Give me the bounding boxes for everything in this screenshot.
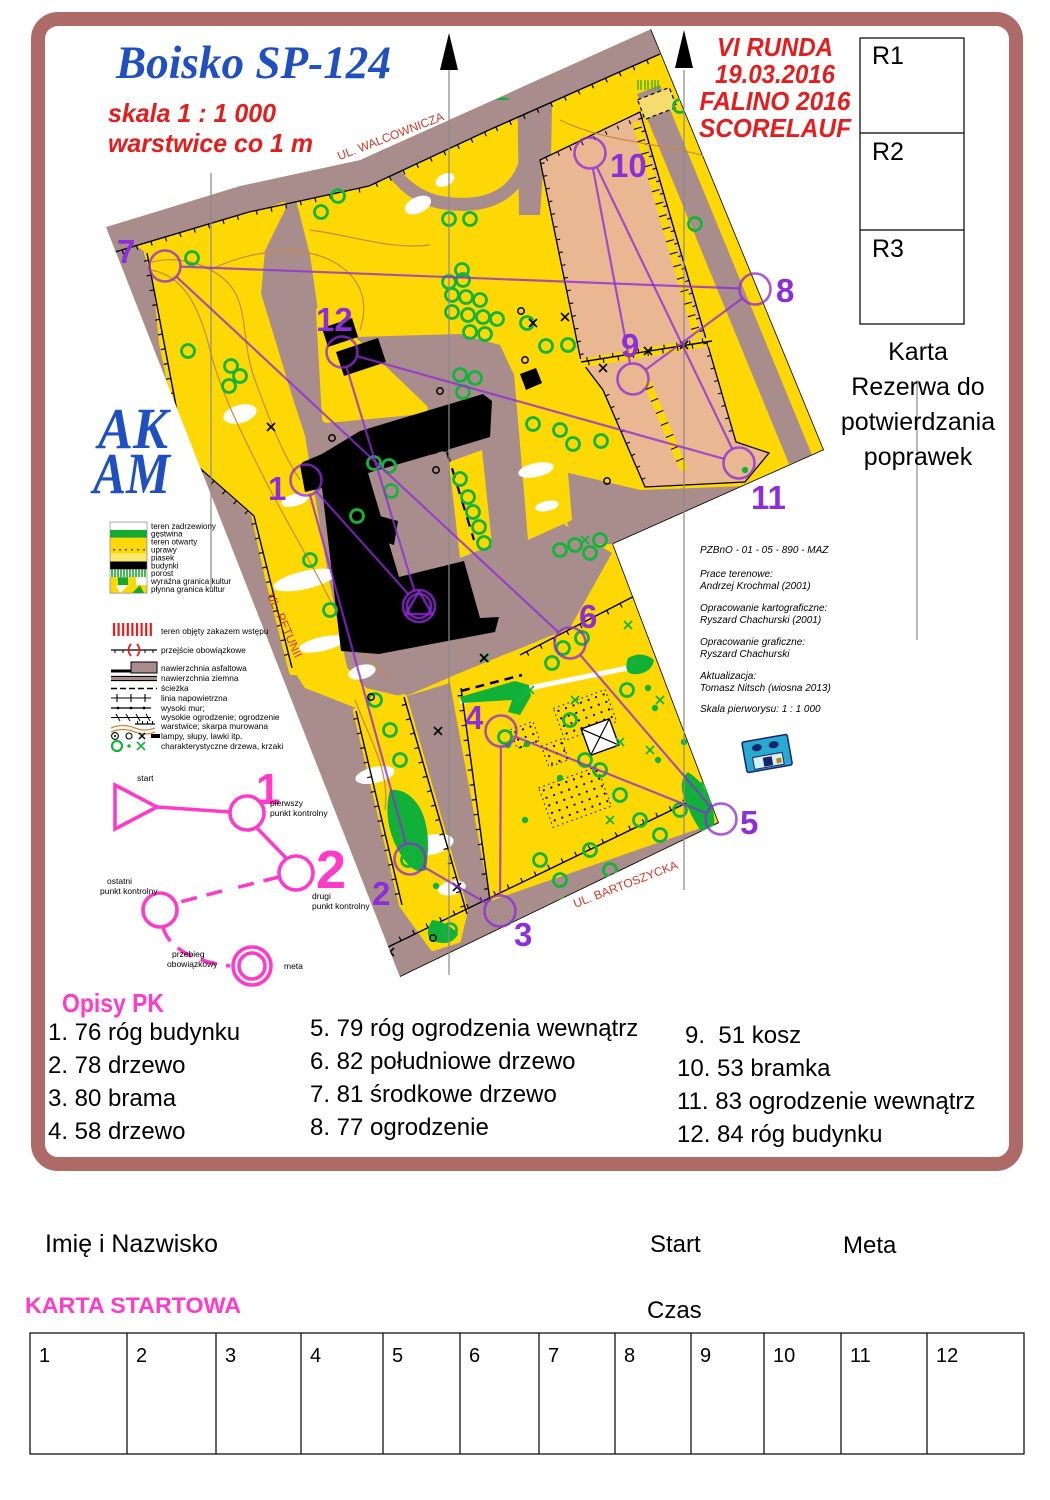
svg-text:1: 1 xyxy=(268,470,286,507)
svg-text:warstwice co 1 m: warstwice co 1 m xyxy=(108,128,313,158)
svg-text:start: start xyxy=(137,773,154,783)
svg-text:Karta: Karta xyxy=(888,338,948,366)
svg-text:punkt kontrolny: punkt kontrolny xyxy=(270,808,328,818)
svg-text:7: 7 xyxy=(548,1345,559,1367)
svg-text:1: 1 xyxy=(39,1345,50,1367)
svg-text:3. 80 brama: 3. 80 brama xyxy=(48,1085,177,1112)
svg-text:drugi: drugi xyxy=(312,891,331,901)
svg-text:nawierzchnia asfaltowa: nawierzchnia asfaltowa xyxy=(161,663,247,673)
svg-text:punkt kontrolny: punkt kontrolny xyxy=(312,901,370,911)
svg-text:12: 12 xyxy=(316,301,353,338)
svg-text:warstwice; skarpa murowana: warstwice; skarpa murowana xyxy=(160,721,268,731)
svg-text:R2: R2 xyxy=(872,138,904,166)
svg-text:przebieg: przebieg xyxy=(172,949,205,959)
svg-text:12. 84 róg budynku: 12. 84 róg budynku xyxy=(677,1121,883,1148)
svg-text:KARTA STARTOWA: KARTA STARTOWA xyxy=(25,1293,241,1318)
svg-text:7: 7 xyxy=(117,233,135,270)
svg-text:Andrzej Krochmal (2001): Andrzej Krochmal (2001) xyxy=(699,581,811,592)
svg-text:6. 82 południowe drzewo: 6. 82 południowe drzewo xyxy=(310,1048,576,1075)
svg-text:9: 9 xyxy=(621,327,639,364)
svg-text:2. 78 drzewo: 2. 78 drzewo xyxy=(48,1052,185,1079)
svg-text:punkt kontrolny: punkt kontrolny xyxy=(100,886,158,896)
svg-text:Opracowanie kartograficzne:: Opracowanie kartograficzne: xyxy=(700,603,828,614)
svg-text:12: 12 xyxy=(936,1345,958,1367)
svg-text:VI RUNDA: VI RUNDA xyxy=(717,32,833,62)
svg-text:2: 2 xyxy=(372,875,390,912)
svg-text:FALINO 2016: FALINO 2016 xyxy=(700,86,851,116)
svg-text:R1: R1 xyxy=(872,42,904,70)
svg-text:5. 79 róg ogrodzenia wewnątrz: 5. 79 róg ogrodzenia wewnątrz xyxy=(310,1015,638,1042)
svg-text:8. 77 ogrodzenie: 8. 77 ogrodzenie xyxy=(310,1114,489,1141)
svg-text:Ryszard Chachurski: Ryszard Chachurski xyxy=(700,649,790,660)
svg-text:AM: AM xyxy=(90,441,172,506)
svg-text:ścieżka: ścieżka xyxy=(161,683,189,693)
svg-text:Imię i Nazwisko: Imię i Nazwisko xyxy=(45,1230,218,1258)
svg-text:4: 4 xyxy=(310,1345,321,1367)
svg-text:R3: R3 xyxy=(872,235,904,263)
svg-text:SCORELAUF: SCORELAUF xyxy=(699,113,852,143)
svg-text:potwierdzania: potwierdzania xyxy=(841,408,995,436)
svg-text:Skala pierworysu: 1 : 1 000: Skala pierworysu: 1 : 1 000 xyxy=(700,704,821,715)
svg-text:przejście obowiązkowe: przejście obowiązkowe xyxy=(161,645,246,655)
svg-text:11: 11 xyxy=(751,479,786,516)
svg-text:2: 2 xyxy=(136,1345,147,1367)
svg-text:6: 6 xyxy=(579,598,597,635)
svg-text:8: 8 xyxy=(624,1345,635,1367)
svg-text:skala 1 : 1 000: skala 1 : 1 000 xyxy=(108,98,277,128)
svg-text:9: 9 xyxy=(700,1345,711,1367)
svg-text:linia napowietrzna: linia napowietrzna xyxy=(161,693,228,703)
svg-text:11. 83 ogrodzenie wewnątrz: 11. 83 ogrodzenie wewnątrz xyxy=(677,1088,975,1115)
svg-text:9. 51 kosz: 9. 51 kosz xyxy=(685,1022,801,1049)
svg-text:5: 5 xyxy=(740,804,758,841)
svg-text:11: 11 xyxy=(850,1345,871,1367)
svg-text:Ryszard Chachurski (2001): Ryszard Chachurski (2001) xyxy=(700,615,821,626)
svg-text:8: 8 xyxy=(776,272,794,309)
svg-text:teren objęty zakazem wstępu: teren objęty zakazem wstępu xyxy=(161,626,269,636)
svg-text:meta: meta xyxy=(284,961,303,971)
svg-text:4. 58 drzewo: 4. 58 drzewo xyxy=(48,1118,185,1145)
svg-text:nawierzchnia ziemna: nawierzchnia ziemna xyxy=(161,673,239,683)
svg-text:19.03.2016: 19.03.2016 xyxy=(715,59,835,89)
svg-text:1. 76 róg budynku: 1. 76 róg budynku xyxy=(48,1019,240,1046)
svg-text:3: 3 xyxy=(225,1345,236,1367)
svg-text:Tomasz Nitsch (wiosna 2013): Tomasz Nitsch (wiosna 2013) xyxy=(700,683,831,694)
svg-text:3: 3 xyxy=(514,916,532,953)
svg-text:obowiązkowy: obowiązkowy xyxy=(167,959,218,969)
svg-text:poprawek: poprawek xyxy=(864,443,973,471)
svg-text:charakterystyczne drzewa, krza: charakterystyczne drzewa, krzaki xyxy=(161,741,283,751)
svg-text:ostatni: ostatni xyxy=(107,876,132,886)
svg-text:Aktualizacja:: Aktualizacja: xyxy=(699,671,756,682)
svg-text:4: 4 xyxy=(465,699,484,736)
svg-text:pierwszy: pierwszy xyxy=(270,798,304,808)
svg-text:PZBnO - 01 - 05 - 890 - MAZ: PZBnO - 01 - 05 - 890 - MAZ xyxy=(700,545,829,556)
svg-text:Start: Start xyxy=(650,1231,701,1258)
svg-text:Prace terenowe:: Prace terenowe: xyxy=(700,569,773,580)
svg-text:Meta: Meta xyxy=(843,1232,897,1259)
svg-text:6: 6 xyxy=(469,1345,480,1367)
svg-text:Czas: Czas xyxy=(647,1297,702,1324)
svg-text:płynna granica kultur: płynna granica kultur xyxy=(151,585,225,594)
svg-text:Rezerwa do: Rezerwa do xyxy=(851,373,984,401)
svg-text:Boisko SP-124: Boisko SP-124 xyxy=(115,37,391,89)
svg-text:7. 81 środkowe drzewo: 7. 81 środkowe drzewo xyxy=(310,1081,557,1108)
svg-text:5: 5 xyxy=(392,1345,403,1367)
svg-text:10: 10 xyxy=(773,1345,795,1367)
svg-text:10: 10 xyxy=(610,147,647,184)
svg-text:Opracowanie graficzne:: Opracowanie graficzne: xyxy=(700,637,805,648)
svg-text:Opisy PK: Opisy PK xyxy=(62,988,164,1018)
svg-text:lampy, słupy, lawki itp.: lampy, słupy, lawki itp. xyxy=(161,731,242,741)
svg-text:10. 53 bramka: 10. 53 bramka xyxy=(677,1055,831,1082)
